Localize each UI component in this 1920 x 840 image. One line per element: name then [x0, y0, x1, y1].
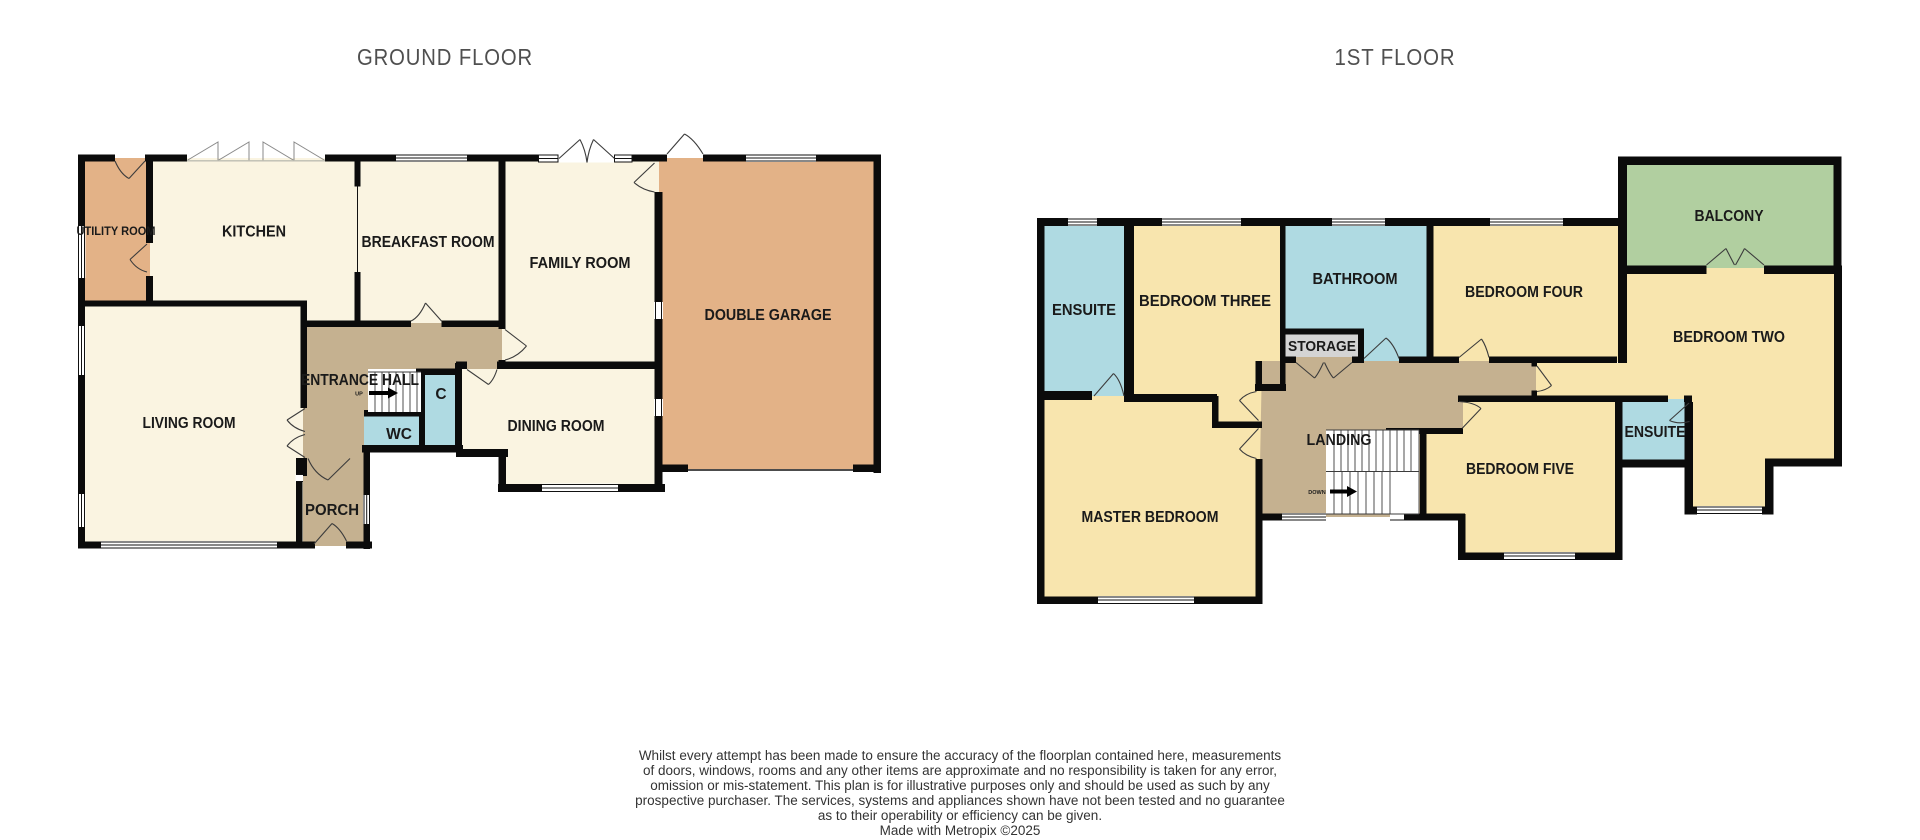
svg-text:WC: WC	[386, 426, 412, 443]
svg-text:BATHROOM: BATHROOM	[1313, 271, 1398, 288]
svg-text:UTILITY ROOM: UTILITY ROOM	[77, 224, 156, 238]
svg-text:as to their operability or eff: as to their operability or efficiency ca…	[818, 808, 1102, 823]
svg-text:BREAKFAST ROOM: BREAKFAST ROOM	[362, 234, 495, 251]
svg-text:prospective purchaser. The ser: prospective purchaser. The services, sys…	[635, 793, 1285, 808]
svg-text:PORCH: PORCH	[305, 502, 359, 519]
svg-text:omission or mis-statement. Thi: omission or mis-statement. This plan is …	[650, 778, 1270, 793]
svg-text:Made with Metropix ©2025: Made with Metropix ©2025	[880, 823, 1041, 838]
svg-text:GROUND FLOOR: GROUND FLOOR	[357, 44, 533, 70]
svg-text:Whilst every attempt has been: Whilst every attempt has been made to en…	[639, 748, 1282, 763]
svg-text:BALCONY: BALCONY	[1695, 208, 1765, 225]
svg-text:LANDING: LANDING	[1307, 432, 1372, 449]
svg-text:ENSUITE: ENSUITE	[1625, 424, 1686, 441]
svg-text:KITCHEN: KITCHEN	[222, 224, 286, 241]
svg-text:ENTRANCE HALL: ENTRANCE HALL	[301, 372, 419, 389]
svg-text:BEDROOM FIVE: BEDROOM FIVE	[1466, 461, 1574, 478]
svg-text:DOWN: DOWN	[1308, 490, 1325, 496]
svg-text:LIVING ROOM: LIVING ROOM	[143, 415, 236, 432]
svg-text:1ST FLOOR: 1ST FLOOR	[1335, 44, 1456, 70]
svg-text:BEDROOM TWO: BEDROOM TWO	[1673, 329, 1785, 346]
svg-text:BEDROOM FOUR: BEDROOM FOUR	[1465, 284, 1583, 301]
svg-text:MASTER BEDROOM: MASTER BEDROOM	[1082, 509, 1219, 526]
svg-text:DINING ROOM: DINING ROOM	[508, 418, 605, 435]
svg-text:STORAGE: STORAGE	[1288, 338, 1356, 355]
svg-text:FAMILY ROOM: FAMILY ROOM	[530, 255, 631, 272]
svg-text:C: C	[435, 386, 446, 403]
svg-text:ENSUITE: ENSUITE	[1052, 302, 1116, 319]
svg-text:of doors, windows, rooms and a: of doors, windows, rooms and any other i…	[643, 763, 1277, 778]
svg-text:BEDROOM THREE: BEDROOM THREE	[1139, 293, 1271, 310]
svg-text:UP: UP	[355, 392, 363, 398]
svg-text:DOUBLE GARAGE: DOUBLE GARAGE	[705, 307, 832, 324]
